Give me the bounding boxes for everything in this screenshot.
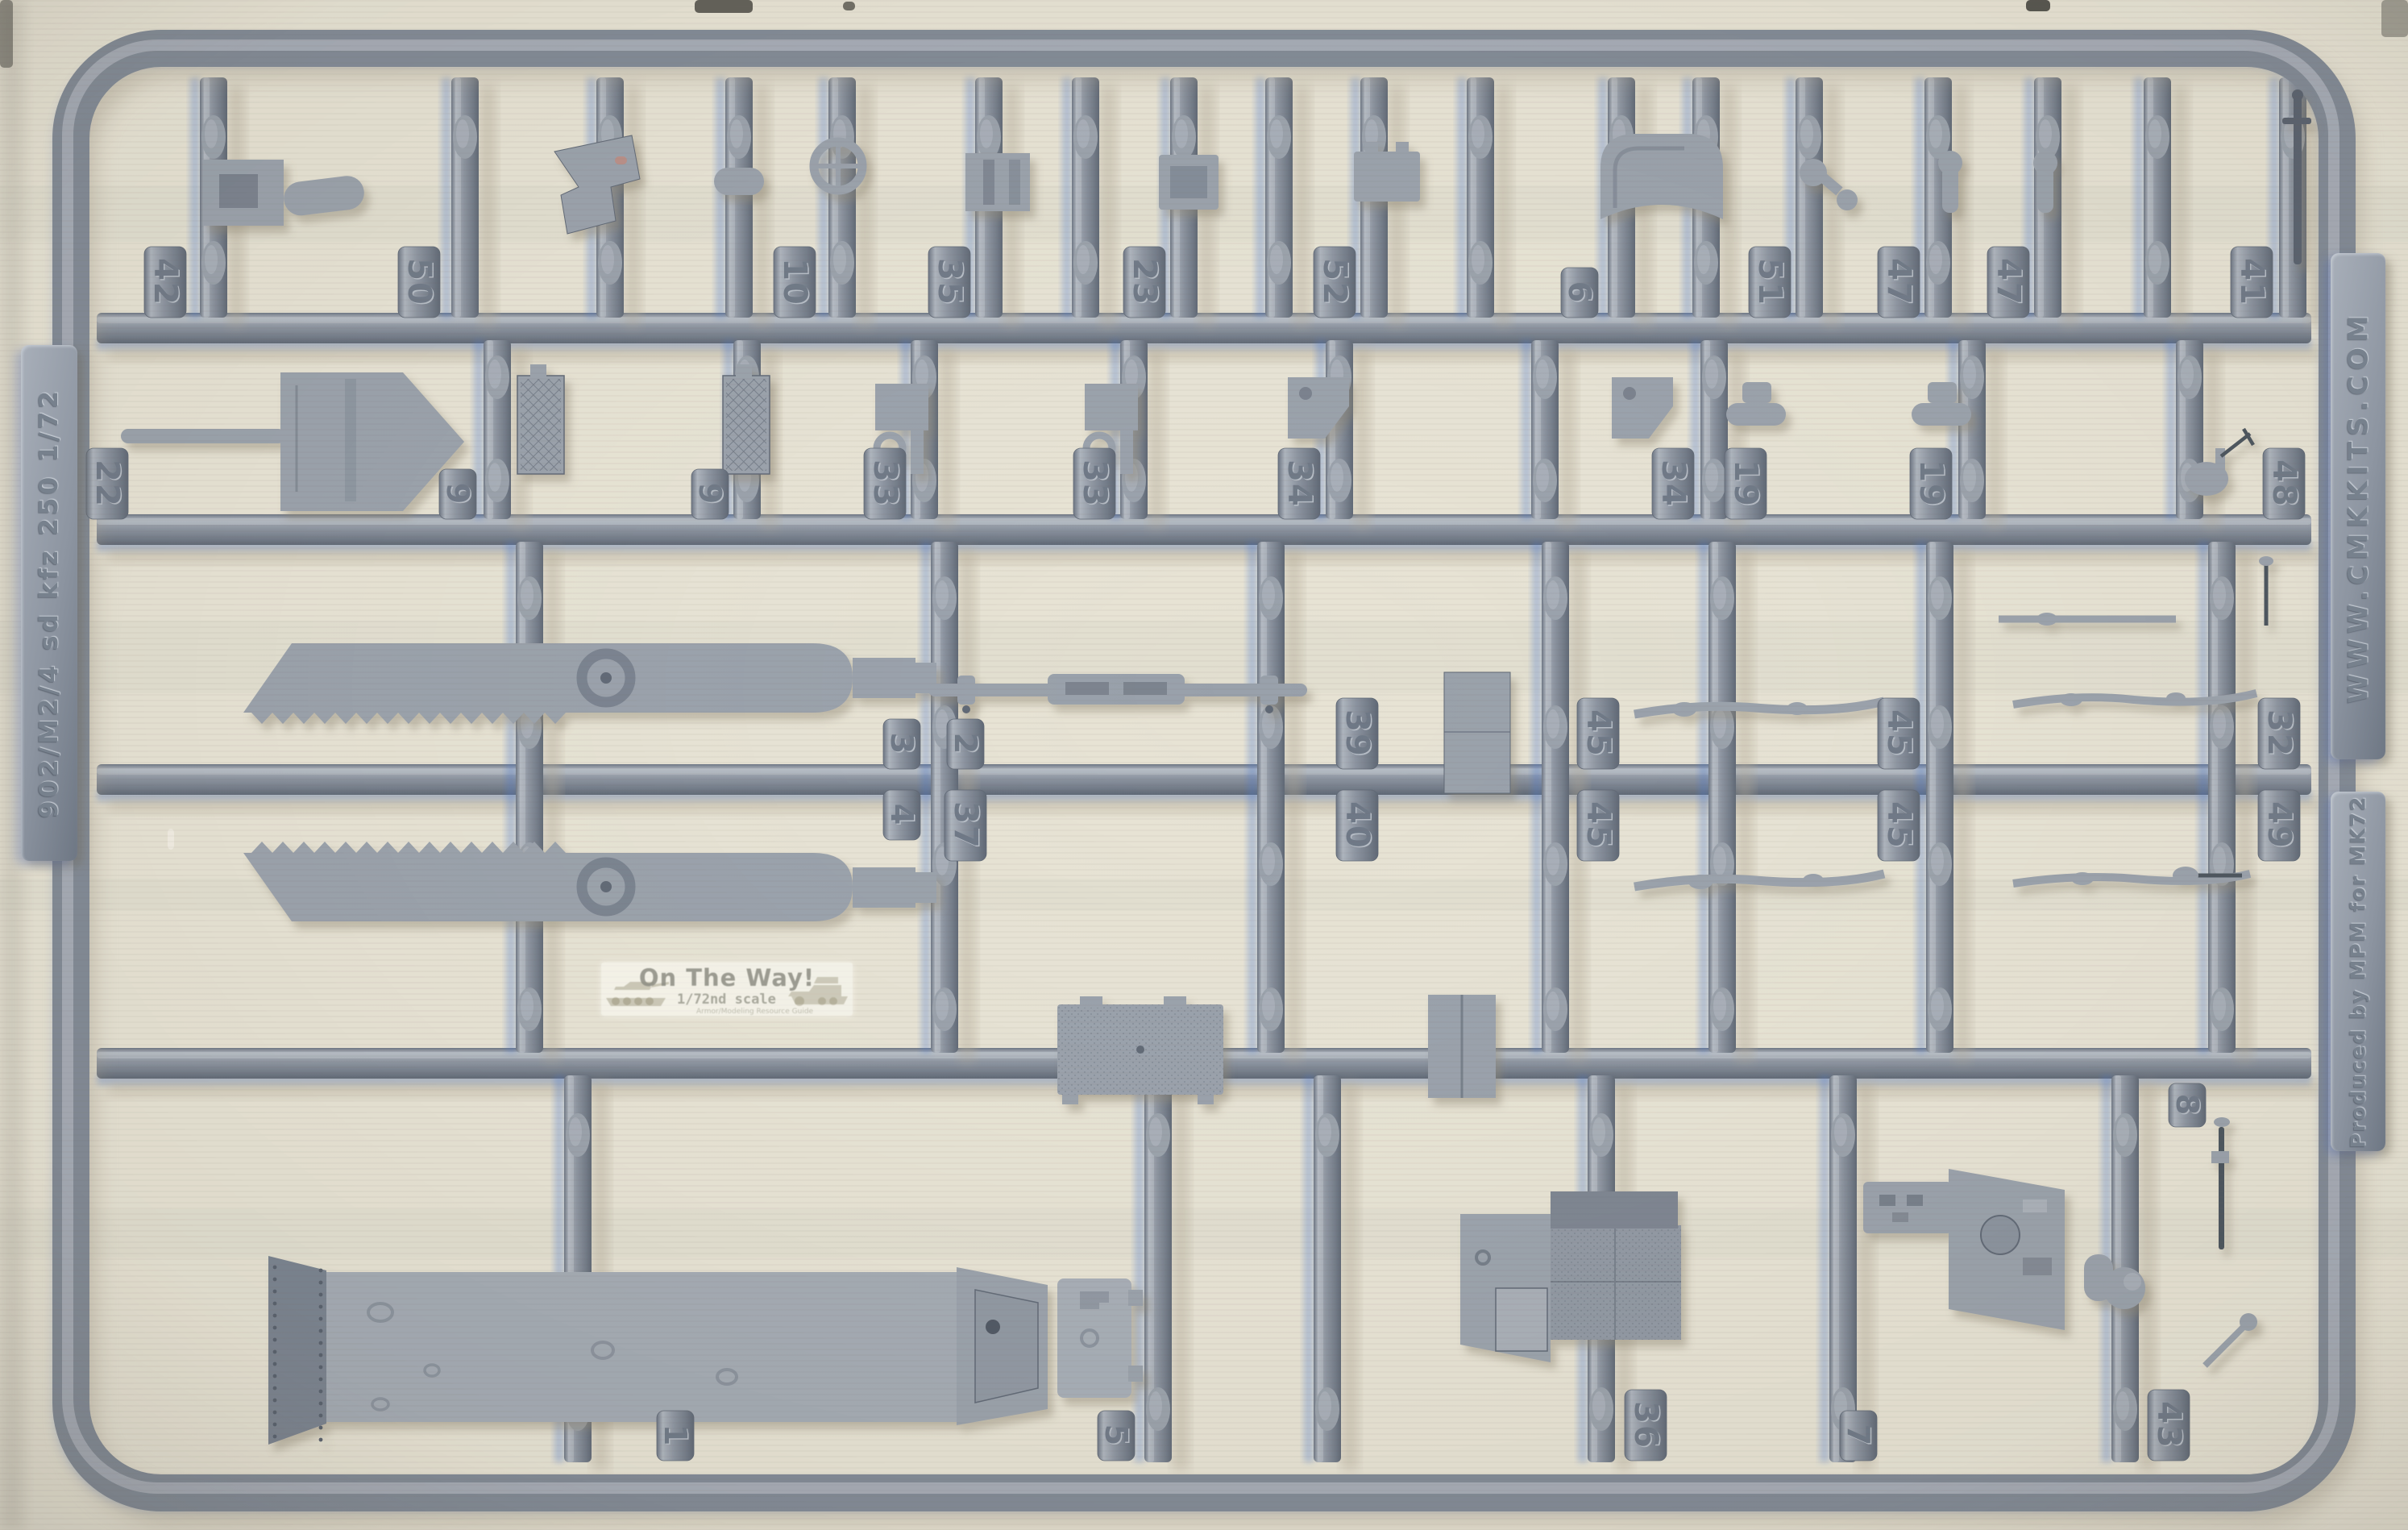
producer-tab: Produced by MPM for MK72	[2331, 792, 2385, 1151]
producer-text: Produced by MPM for MK72	[2347, 795, 2370, 1148]
cmkkits-url-text: WWW.CMKKITS.COM	[2343, 310, 2374, 703]
kit-code-tab: 902/M2/4 sd kfz 250 1/72	[21, 345, 77, 861]
watermark-title: On The Way!	[601, 964, 853, 992]
sprue-frame-and-parts: 4242505010103535232352526651514747474741…	[0, 0, 2408, 1530]
watermark-fineprint: Armor/Modeling Resource Guide	[696, 1008, 813, 1016]
sprue-scan-photo: 4242505010103535232352526651514747474741…	[0, 0, 2408, 1530]
watermark-scale-text: 1/72nd scale	[677, 992, 776, 1008]
on-the-way-watermark: On The Way! 1/72nd scale Armor/Modeling …	[601, 962, 853, 1016]
kit-code-text: 902/M2/4 sd kfz 250 1/72	[35, 388, 64, 818]
cmkkits-url-tab: WWW.CMKKITS.COM	[2331, 253, 2385, 759]
